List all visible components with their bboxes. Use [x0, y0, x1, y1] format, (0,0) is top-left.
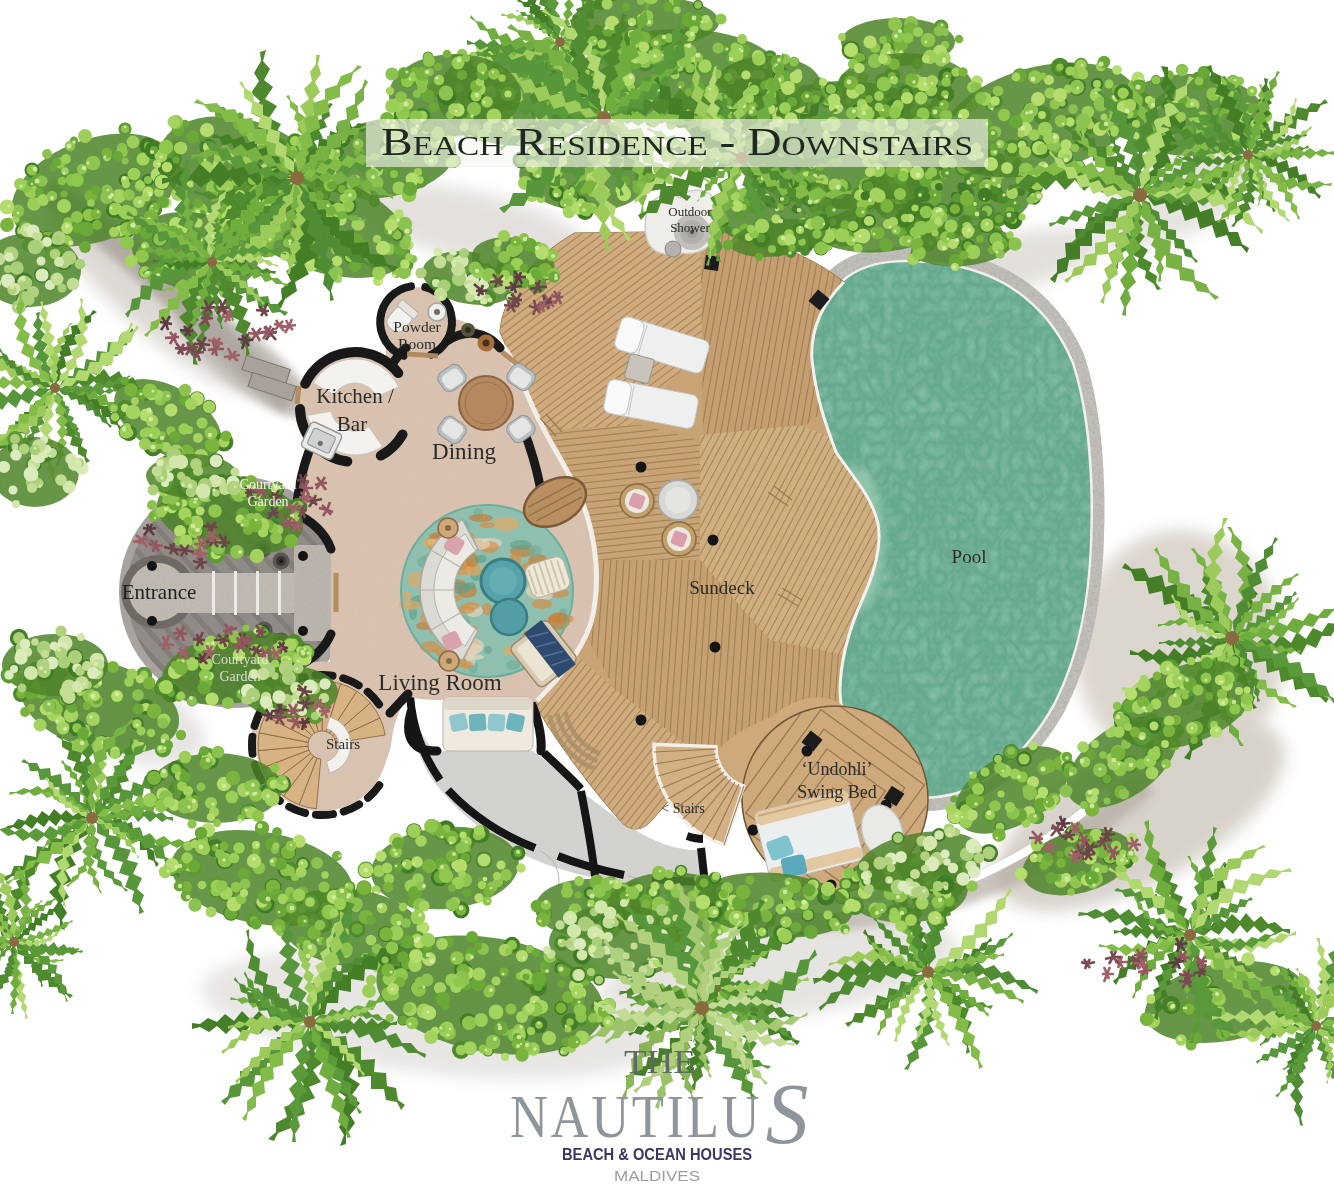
svg-text:Swing Bed: Swing Bed [797, 782, 877, 802]
svg-text:Kitchen /: Kitchen / [316, 384, 394, 408]
svg-text:BEACH & OCEAN HOUSES: BEACH & OCEAN HOUSES [562, 1146, 752, 1163]
svg-text:Bar: Bar [337, 412, 367, 436]
svg-text:Garden: Garden [247, 494, 288, 509]
svg-text:THE: THE [624, 1043, 696, 1080]
svg-text:NAUTILU: NAUTILU [510, 1082, 762, 1150]
svg-text:Courtyard: Courtyard [212, 652, 269, 667]
svg-text:Room: Room [398, 335, 436, 352]
svg-text:Sundeck: Sundeck [689, 577, 755, 598]
svg-text:MALDIVES: MALDIVES [614, 1168, 700, 1184]
svg-text:Powder: Powder [393, 318, 441, 335]
svg-text:Shower: Shower [670, 220, 710, 235]
svg-text:Beach Residence - Downstairs: Beach Residence - Downstairs [381, 119, 973, 164]
svg-text:‘Undohli’: ‘Undohli’ [802, 759, 873, 779]
svg-text:Stairs: Stairs [326, 736, 360, 752]
svg-text:Garden: Garden [219, 669, 260, 684]
svg-text:Courtyard: Courtyard [240, 477, 297, 492]
svg-text:S: S [766, 1066, 809, 1162]
svg-text:Pool: Pool [952, 546, 987, 567]
svg-text:Living Room: Living Room [378, 670, 501, 695]
svg-text:< Stairs: < Stairs [661, 801, 704, 816]
svg-text:Dining: Dining [432, 439, 496, 464]
svg-text:Entrance: Entrance [122, 580, 197, 604]
svg-text:Outdoor: Outdoor [668, 204, 712, 219]
